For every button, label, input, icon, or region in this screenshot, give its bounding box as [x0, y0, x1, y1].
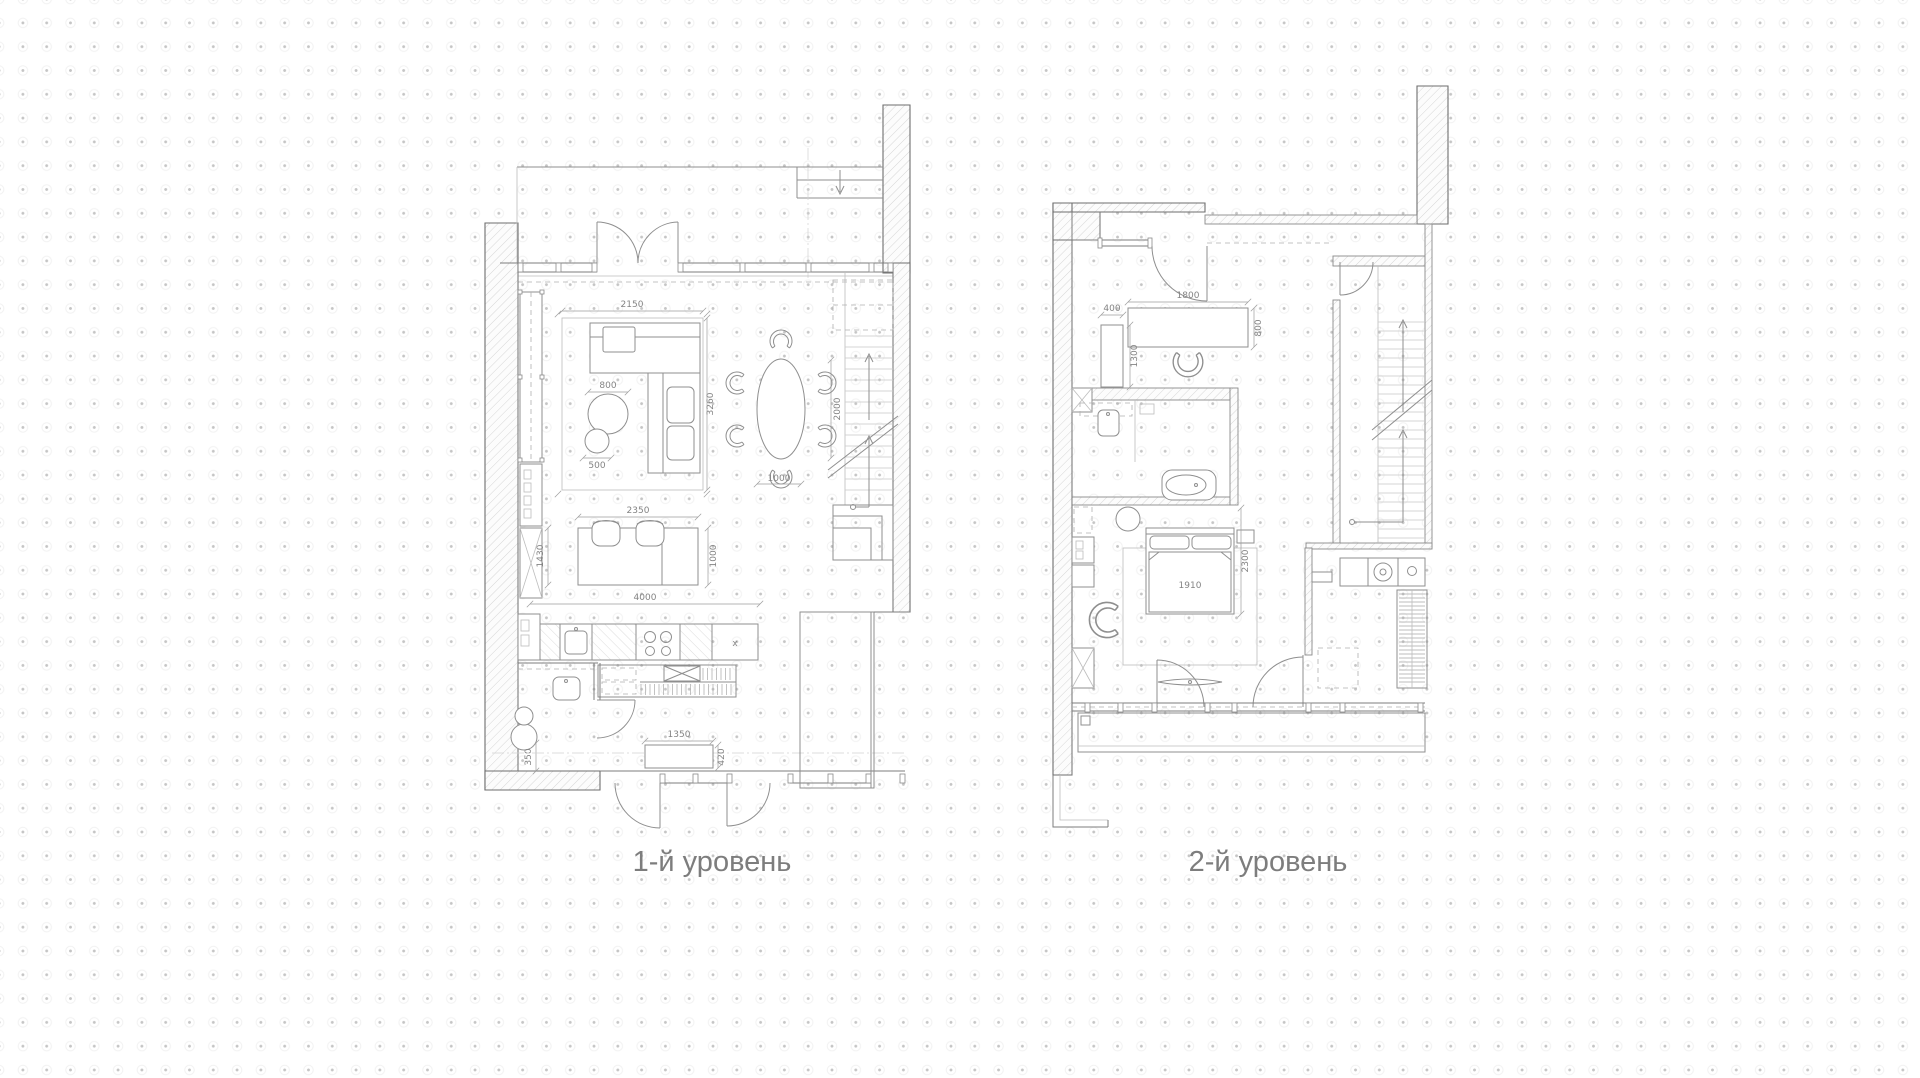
level1-kitchen-counter: x [518, 614, 758, 660]
entry-door-left [615, 783, 660, 828]
level1-label: 1-й уровень [633, 846, 792, 878]
floor-plan-level-1: 2150 3260 800 500 2000 1000 [485, 105, 910, 878]
counter-mark: x [732, 639, 738, 649]
dim-island-width: 2350 [627, 506, 650, 516]
dim-dining-clearance: 1000 [768, 474, 791, 484]
washbasin-icon [1098, 410, 1119, 436]
desk [1128, 308, 1248, 377]
balcony [1078, 713, 1425, 752]
bed: 1910 [1146, 528, 1234, 614]
dim-shelf-length: 1300 [1130, 344, 1140, 367]
tv-icon [1158, 679, 1222, 685]
washbasin-icon [553, 677, 580, 700]
level2-bedroom: 1910 2300 [1072, 505, 1303, 707]
nightstand [1237, 530, 1254, 543]
dim-living-width: 2150 [621, 300, 644, 310]
dim-bench-depth: 420 [717, 748, 727, 765]
dim-wc-clearance: 350 [524, 748, 534, 765]
sink-icon [565, 628, 587, 655]
floor-plan-level-2: 400 1300 1800 800 [1053, 86, 1448, 878]
french-door [597, 222, 678, 263]
level2-closet [1312, 558, 1427, 688]
level1-porch [800, 612, 910, 788]
duct-box [1072, 388, 1092, 412]
bathroom-door [597, 700, 635, 738]
level1-living-zone: 2150 3260 800 500 [555, 300, 716, 497]
cooktop-icon [645, 632, 672, 656]
level2-label: 2-й уровень [1189, 846, 1348, 878]
dim-bed-zone-depth: 2300 [1241, 549, 1251, 572]
level1-kitchen-island: 2350 1000 1430 4000 [527, 506, 763, 607]
shelf-unit [1101, 325, 1123, 387]
dim-kitchen-run: 4000 [634, 593, 657, 603]
round-side-table [1116, 507, 1140, 531]
bathtub-icon [1162, 470, 1216, 500]
stairs-up-arrow-icon [851, 354, 874, 510]
floor-plans-canvas: 2150 3260 800 500 2000 1000 [0, 0, 1920, 1078]
dim-desk-depth: 800 [1254, 319, 1264, 336]
dim-shelf-width: 400 [1103, 304, 1120, 314]
level2-bathroom [1072, 388, 1216, 500]
hanging-rail [1397, 590, 1427, 688]
level2-stairs [1340, 262, 1432, 543]
dim-dining-depth: 2000 [833, 397, 843, 420]
entry-door-right [727, 783, 770, 826]
dim-coffee-large: 800 [599, 381, 616, 391]
wall-dressers [1072, 507, 1094, 688]
armchair [1089, 602, 1118, 637]
dim-coffee-small: 500 [588, 461, 605, 471]
dim-bed-width: 1910 [1179, 581, 1202, 591]
level1-dining-zone: 2000 1000 [726, 330, 843, 488]
dim-island-depth: 1000 [709, 544, 719, 567]
level2-bottom-facade [1053, 703, 1425, 827]
dim-desk-width: 1800 [1177, 291, 1200, 301]
toilet-icon [511, 707, 537, 750]
dim-living-depth: 3260 [706, 392, 716, 415]
terrace-stair-arrow-icon [836, 170, 844, 194]
dim-bench-width: 1350 [668, 730, 691, 740]
coffee-tables [585, 394, 628, 453]
dim-aisle-width: 1430 [536, 544, 546, 567]
level1-entry-wardrobe [598, 665, 736, 697]
entry-bench: 1350 420 [642, 730, 727, 771]
level2-study: 400 1300 1800 800 [1098, 238, 1333, 390]
closet-door [1253, 655, 1303, 707]
level1-terrace [517, 148, 883, 278]
landing-door [1340, 262, 1373, 295]
